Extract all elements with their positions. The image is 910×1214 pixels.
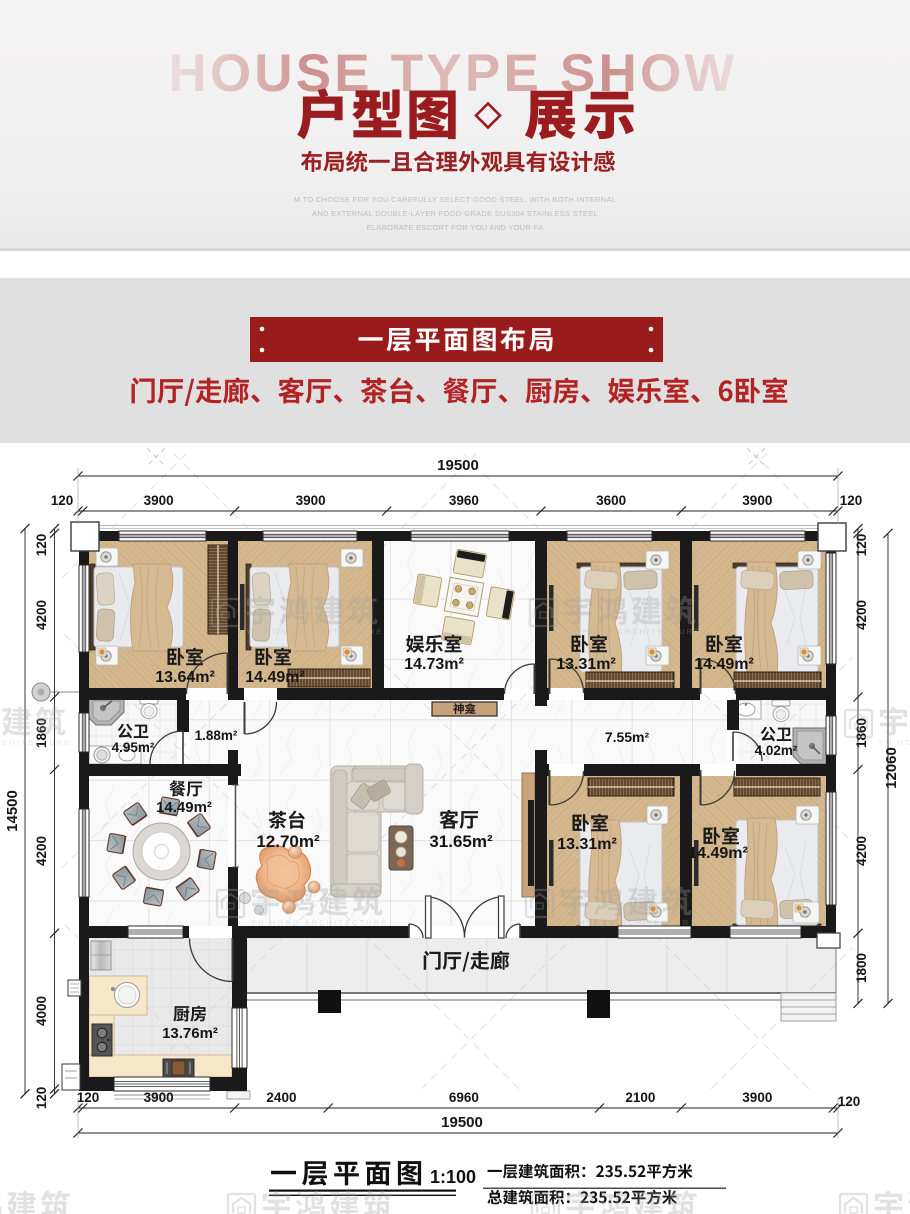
- svg-text:120: 120: [34, 534, 49, 557]
- svg-text:13.76m²: 13.76m²: [162, 1025, 218, 1042]
- svg-text:6960: 6960: [449, 1090, 479, 1105]
- svg-text:3900: 3900: [742, 1090, 772, 1105]
- svg-text:120: 120: [840, 493, 863, 508]
- svg-text:7.55m²: 7.55m²: [605, 729, 650, 745]
- svg-text:2100: 2100: [625, 1090, 655, 1105]
- svg-text:2400: 2400: [266, 1090, 296, 1105]
- svg-text:12.70m²: 12.70m²: [256, 832, 320, 851]
- svg-text:13.31m²: 13.31m²: [557, 836, 617, 853]
- svg-text:1.88m²: 1.88m²: [195, 728, 238, 743]
- svg-text:19500: 19500: [437, 457, 479, 474]
- svg-text:3900: 3900: [144, 1090, 174, 1105]
- svg-text:14.49m²: 14.49m²: [688, 845, 748, 862]
- svg-text:M TO CHOOSE FOR YOU CAREFULLY: M TO CHOOSE FOR YOU CAREFULLY SELECT GOO…: [294, 195, 616, 204]
- svg-text:120: 120: [854, 534, 869, 557]
- svg-text:4000: 4000: [34, 996, 49, 1026]
- svg-text:120: 120: [77, 1090, 100, 1105]
- svg-text:4200: 4200: [34, 836, 49, 866]
- svg-text:4200: 4200: [34, 600, 49, 630]
- svg-text:13.31m²: 13.31m²: [556, 656, 616, 673]
- svg-text:4200: 4200: [854, 600, 869, 630]
- svg-text:31.65m²: 31.65m²: [429, 832, 493, 851]
- svg-text:120: 120: [51, 493, 74, 508]
- svg-text:4200: 4200: [854, 836, 869, 866]
- svg-text:14.73m²: 14.73m²: [404, 656, 464, 673]
- svg-text:14500: 14500: [4, 790, 21, 832]
- svg-text:120: 120: [34, 1087, 49, 1110]
- svg-text:3960: 3960: [449, 493, 479, 508]
- svg-text:4.95m²: 4.95m²: [112, 740, 155, 755]
- svg-text:14.49m²: 14.49m²: [694, 656, 754, 673]
- svg-text:13.64m²: 13.64m²: [155, 669, 215, 686]
- svg-text:ELABORATE ESCORT FOR YOU AND Y: ELABORATE ESCORT FOR YOU AND YOUR FA: [367, 223, 544, 232]
- svg-text:3600: 3600: [596, 493, 626, 508]
- svg-text:19500: 19500: [441, 1114, 483, 1131]
- svg-text:12060: 12060: [883, 747, 900, 789]
- svg-text:1:100: 1:100: [430, 1167, 476, 1187]
- svg-text:14.49m²: 14.49m²: [245, 669, 305, 686]
- svg-text:3900: 3900: [742, 493, 772, 508]
- svg-text:1800: 1800: [854, 953, 869, 983]
- svg-text:3900: 3900: [144, 493, 174, 508]
- svg-text:AND EXTERNAL DOUBLE-LAYER FOOD: AND EXTERNAL DOUBLE-LAYER FOOD-GRADE SUS…: [312, 209, 598, 218]
- svg-text:120: 120: [838, 1094, 861, 1109]
- svg-text:4.02m²: 4.02m²: [755, 743, 798, 758]
- svg-text:14.49m²: 14.49m²: [156, 799, 212, 816]
- svg-text:3900: 3900: [296, 493, 326, 508]
